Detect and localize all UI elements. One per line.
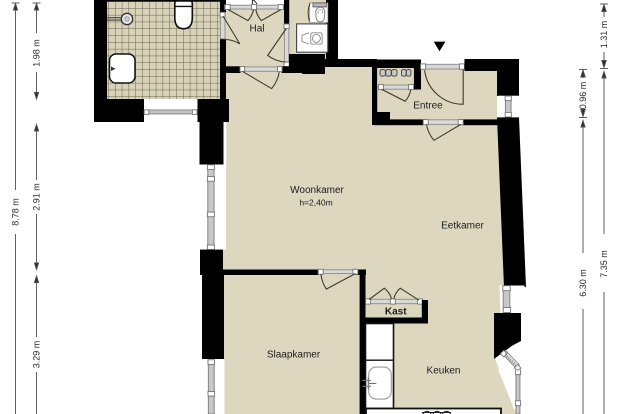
svg-text:Slaapkamer: Slaapkamer (267, 350, 321, 361)
svg-text:6.30 m: 6.30 m (578, 269, 588, 297)
svg-text:Entree: Entree (413, 101, 443, 112)
svg-text:K: K (251, 0, 258, 7)
svg-text:Hal: Hal (249, 24, 264, 35)
svg-text:7.35 m: 7.35 m (599, 250, 609, 278)
svg-text:Eetkamer: Eetkamer (441, 221, 484, 232)
svg-text:1.31 m: 1.31 m (599, 21, 609, 49)
svg-text:Keuken: Keuken (427, 366, 461, 377)
svg-text:Kast: Kast (385, 306, 407, 317)
svg-text:1.98 m: 1.98 m (32, 39, 42, 67)
svg-text:h=2,40m: h=2,40m (299, 198, 332, 208)
svg-text:8.78 m: 8.78 m (11, 198, 21, 226)
svg-text:Woonkamer: Woonkamer (290, 185, 344, 196)
svg-text:0.96 m: 0.96 m (578, 82, 588, 110)
svg-text:3.29 m: 3.29 m (32, 341, 42, 369)
svg-text:2.91 m: 2.91 m (32, 183, 42, 211)
